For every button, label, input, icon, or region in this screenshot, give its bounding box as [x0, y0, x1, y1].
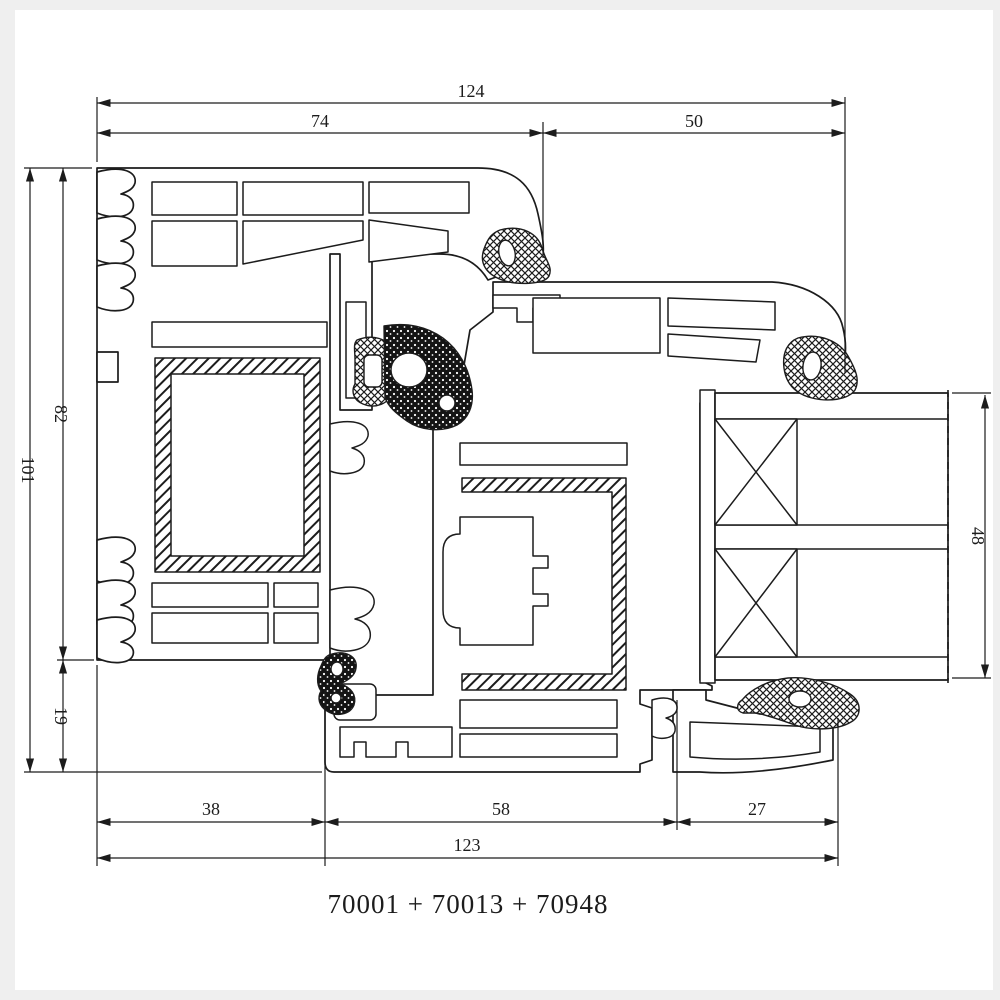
dim-top-right-value: 50	[685, 111, 703, 131]
frame-chamber	[274, 583, 318, 607]
gasket-hole-small	[331, 693, 341, 703]
dim-right-glazing-value: 48	[968, 527, 988, 545]
profile-caption: 70001 + 70013 + 70948	[328, 889, 609, 919]
frame-sash-stop-hook	[330, 587, 374, 651]
dim-top-total-value: 124	[458, 81, 485, 101]
dim-left-total-value: 101	[18, 457, 38, 484]
page: 124 74 50 101 82 19 48 38 58 27 123 7000…	[0, 0, 1000, 1000]
frame-notch	[97, 352, 118, 382]
frame-chamber	[152, 182, 237, 215]
glazing-packer	[700, 390, 715, 683]
holder-hole	[364, 355, 382, 387]
dim-left-upper-value: 82	[51, 405, 71, 423]
gasket-hole	[789, 691, 811, 707]
dim-bottom-middle-value: 58	[492, 799, 510, 819]
frame-chamber	[152, 322, 327, 347]
dim-bottom-left-value: 38	[202, 799, 220, 819]
sash-chamber	[460, 700, 617, 728]
sash-hardware-groove	[443, 517, 548, 645]
frame-chamber	[243, 182, 363, 215]
frame-chamber	[152, 221, 237, 266]
fan-gasket-hole	[391, 353, 427, 387]
frame-chamber	[369, 182, 469, 213]
fan-gasket-hole-small	[439, 395, 455, 411]
sash-chamber	[668, 298, 775, 330]
bead-chamber	[690, 722, 820, 759]
profile-drawing: 124 74 50 101 82 19 48 38 58 27 123 7000…	[15, 10, 993, 990]
drawing-canvas: 124 74 50 101 82 19 48 38 58 27 123 7000…	[15, 10, 993, 990]
dim-top-left-value: 74	[311, 111, 329, 131]
frame-steel-inner	[171, 374, 304, 556]
dim-bottom-right-value: 27	[748, 799, 766, 819]
sash-chamber	[460, 443, 627, 465]
frame-chamber	[152, 613, 268, 643]
sash-chamber	[460, 734, 617, 757]
sash-chamber	[533, 298, 660, 353]
frame-sash-stop-hook	[330, 422, 368, 474]
gasket-hole	[331, 662, 343, 676]
dim-left-lower-value: 19	[51, 707, 71, 725]
glazing-unit	[700, 390, 948, 683]
frame-chamber	[152, 583, 268, 607]
dim-bottom-total-value: 123	[454, 835, 481, 855]
frame-chamber	[274, 613, 318, 643]
